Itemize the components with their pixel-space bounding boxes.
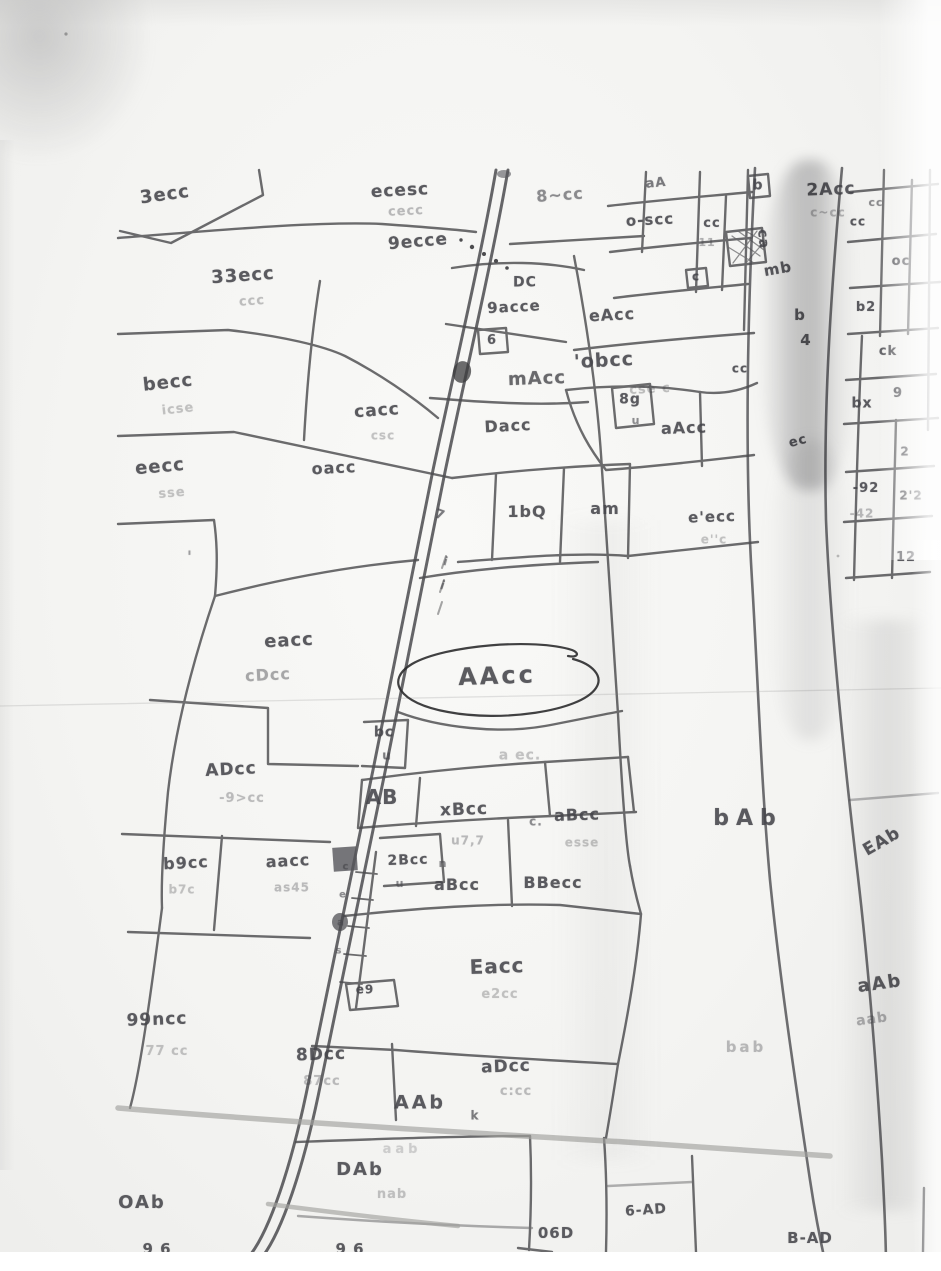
plot-number-label: aA: [645, 176, 667, 191]
plot-number-label: b: [794, 308, 806, 323]
plot-number-label: bc: [374, 725, 394, 739]
plot-number-label: u7,7: [451, 834, 485, 846]
plot-number-label: AB: [366, 787, 399, 807]
scan-bottom-band: [0, 1252, 941, 1271]
plot-number-label: cc: [732, 362, 748, 374]
plot-number-label: -92: [853, 482, 880, 495]
plot-number-label: k: [471, 1109, 480, 1121]
plot-number-label: eAcc: [589, 306, 636, 324]
plot-number-label: 8~cc: [536, 186, 585, 205]
plot-number-label: becc: [142, 372, 194, 395]
highlighted-plot-label: AAcc: [458, 662, 536, 689]
scan-right-curl: [877, 0, 941, 560]
plot-number-label: 'obcc: [574, 350, 635, 372]
plot-number-label: 6-AD: [625, 1202, 668, 1219]
plot-labels-layer: 3ecc33ecccccbeccicseeeccsseecesccecc9ecc…: [0, 0, 941, 1271]
plot-number-label: a ec.: [499, 748, 541, 762]
plot-number-label: bab: [726, 1040, 767, 1055]
plot-number-label: 2Acc: [806, 181, 856, 200]
plot-number-label: DC: [513, 275, 537, 289]
scan-left-edge: [0, 140, 14, 1170]
plot-number-label: 1bQ: [507, 504, 546, 520]
plot-number-label: nab: [377, 1188, 407, 1201]
scanned-cadastral-map-page: 3ecc33ecccccbeccicseeeccsseecesccecc9ecc…: [0, 0, 941, 1271]
plot-number-label: i: [439, 579, 448, 592]
plot-number-label: aAcc: [661, 419, 708, 437]
plot-number-label: am: [590, 501, 619, 517]
plot-number-label: mb: [763, 259, 794, 279]
plot-number-label: cacc: [354, 401, 401, 421]
plot-number-label: DAb: [336, 1161, 384, 1179]
plot-number-label: aBcc: [554, 806, 600, 824]
plot-number-label: bAb: [713, 808, 783, 830]
plot-number-label: u: [382, 749, 392, 761]
plot-number-label: ADcc: [205, 760, 257, 780]
plot-number-label: sse: [158, 486, 186, 501]
plot-number-label: eecc: [134, 456, 185, 478]
plot-number-label: mAcc: [508, 369, 567, 389]
plot-number-label: e9: [356, 983, 375, 995]
plot-number-label: -9>cc: [219, 792, 265, 805]
plot-number-label: OAb: [118, 1194, 166, 1212]
plot-number-label: c:cc: [500, 1085, 532, 1098]
plot-number-label: 9ecce: [387, 231, 448, 253]
plot-number-label: cc: [703, 217, 720, 230]
plot-number-label: cc: [850, 215, 866, 227]
plot-number-label: -42: [850, 507, 875, 519]
plot-number-label: 87cc: [303, 1075, 341, 1088]
plot-number-label: EAb: [860, 825, 903, 860]
plot-number-label: u: [396, 878, 405, 889]
plot-number-label: n: [439, 858, 448, 869]
plot-number-label: b7c: [168, 883, 195, 895]
plot-number-label: oacc: [311, 459, 357, 477]
plot-number-label: b9cc: [163, 854, 209, 872]
plot-number-label: 11: [698, 237, 715, 248]
plot-number-label: aab: [383, 1143, 422, 1156]
plot-number-label: c.: [529, 815, 543, 827]
plot-number-label: B-AD: [787, 1231, 833, 1246]
plot-number-label: ecesc: [370, 181, 429, 201]
plot-number-label: 77 cc: [145, 1045, 188, 1058]
plot-number-label: aacc: [265, 852, 310, 870]
plot-number-label: c: [692, 270, 700, 282]
plot-number-label: 8g: [619, 392, 641, 406]
plot-number-label: aDcc: [481, 1058, 531, 1077]
plot-number-label: aab: [855, 1010, 889, 1028]
plot-number-label: 06D: [538, 1226, 574, 1241]
plot-number-label: cDcc: [245, 666, 292, 684]
plot-number-label: 3ecc: [139, 183, 191, 208]
plot-number-label: csc: [371, 429, 395, 441]
plot-number-label: 8Dcc: [296, 1046, 347, 1065]
plot-number-label: Dacc: [484, 417, 532, 435]
plot-number-label: 6: [487, 334, 497, 347]
scan-right-edge: [911, 540, 941, 1271]
plot-number-label: e''c: [701, 533, 728, 545]
plot-number-label: a: [337, 919, 345, 929]
plot-number-label: s: [336, 947, 343, 957]
plot-number-label: ec: [787, 433, 808, 450]
plot-number-label: ': [187, 549, 193, 565]
plot-number-label: ccc: [239, 294, 266, 309]
plot-number-label: e: [339, 891, 347, 901]
plot-number-label: esse: [565, 836, 600, 848]
plot-number-label: 4: [800, 333, 811, 348]
plot-number-label: e'ecc: [688, 509, 736, 526]
plot-number-label: bx: [851, 396, 872, 410]
plot-number-label: icse: [161, 401, 195, 417]
plot-number-label: 7: [433, 508, 447, 524]
plot-number-label: 2Bcc: [387, 853, 428, 868]
plot-number-label: aBcc: [434, 877, 480, 893]
plot-number-label: eacc: [264, 631, 315, 652]
plot-number-label: AAb: [394, 1094, 446, 1113]
plot-number-label: c~cc: [810, 206, 845, 218]
plot-number-label: e2cc: [481, 988, 518, 1001]
plot-number-label: b: [752, 178, 763, 192]
plot-number-label: ca: [755, 229, 771, 250]
plot-number-label: i: [442, 555, 450, 568]
plot-number-label: u: [632, 415, 641, 426]
plot-number-label: o-scc: [626, 211, 675, 229]
plot-number-label: BBecc: [523, 875, 582, 891]
plot-number-label: 33ecc: [211, 265, 276, 287]
plot-number-label: as45: [274, 881, 310, 893]
plot-number-label: b2: [856, 301, 876, 314]
plot-number-label: Eacc: [469, 955, 525, 977]
plot-number-label: 9acce: [487, 298, 541, 316]
plot-number-label: aAb: [856, 972, 903, 996]
plot-number-label: 99ncc: [126, 1011, 187, 1030]
plot-number-label: cecc: [388, 204, 425, 219]
plot-number-label: c: [343, 863, 350, 873]
plot-number-label: xBcc: [440, 801, 489, 820]
